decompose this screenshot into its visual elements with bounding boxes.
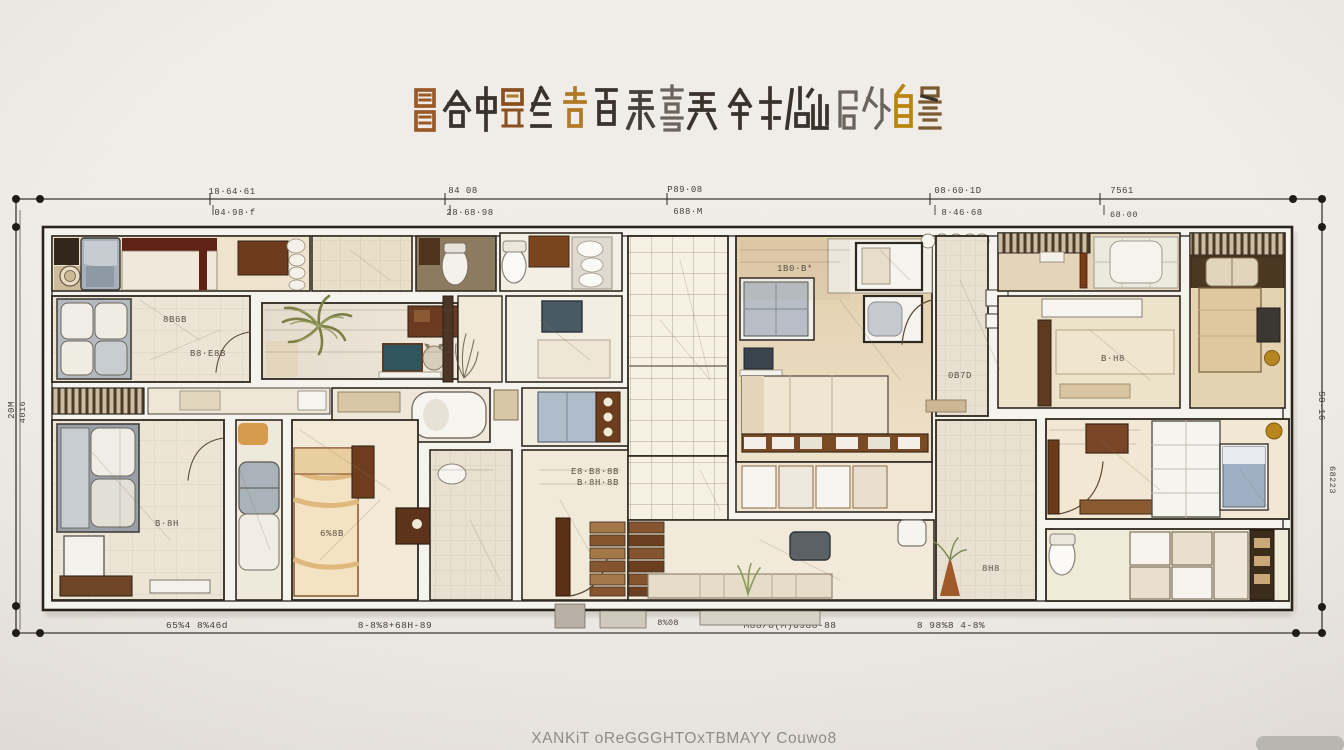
svg-text:P89·08: P89·08 [667, 185, 702, 195]
svg-text:B·H8: B·H8 [1101, 354, 1125, 364]
svg-text:8·46·68: 8·46·68 [941, 208, 982, 218]
svg-text:7561: 7561 [1110, 186, 1134, 196]
svg-text:8%08: 8%08 [657, 618, 679, 628]
svg-text:28·68·98: 28·68·98 [446, 208, 493, 218]
svg-text:8H8: 8H8 [982, 564, 1000, 574]
svg-text:18·64·61: 18·64·61 [208, 187, 255, 197]
svg-text:8 98%8 4-8%: 8 98%8 4-8% [917, 620, 985, 631]
svg-text:S8·16: S8·16 [1316, 391, 1326, 421]
svg-text:B8·E8B: B8·E8B [190, 349, 226, 359]
svg-text:4016: 4016 [18, 401, 28, 423]
svg-text:65%4 8%46d: 65%4 8%46d [166, 620, 228, 631]
svg-text:04·98·f: 04·98·f [214, 208, 255, 218]
svg-text:E8·B8·8B: E8·B8·8B [571, 467, 619, 477]
svg-text:B·8H: B·8H [155, 519, 179, 529]
svg-text:68·00: 68·00 [1110, 210, 1138, 220]
svg-text:1B0·B*: 1B0·B* [777, 264, 813, 274]
svg-text:8-8%8+68H-89: 8-8%8+68H-89 [358, 620, 432, 631]
svg-text:688·M: 688·M [673, 207, 703, 217]
svg-text:8B6B: 8B6B [163, 315, 187, 325]
svg-text:68223: 68223 [1327, 466, 1337, 494]
svg-text:XANKiT oReGGGHTOxTBMAYY Couwo8: XANKiT oReGGGHTOxTBMAYY Couwo8 [531, 730, 836, 747]
svg-text:6%8B: 6%8B [320, 529, 344, 539]
svg-text:B·8H·8B: B·8H·8B [577, 478, 619, 488]
svg-text:84 08: 84 08 [448, 186, 478, 196]
svg-text:20M: 20M [7, 401, 17, 419]
svg-text:08·60·1D: 08·60·1D [934, 186, 981, 196]
svg-text:0B7D: 0B7D [948, 371, 972, 381]
